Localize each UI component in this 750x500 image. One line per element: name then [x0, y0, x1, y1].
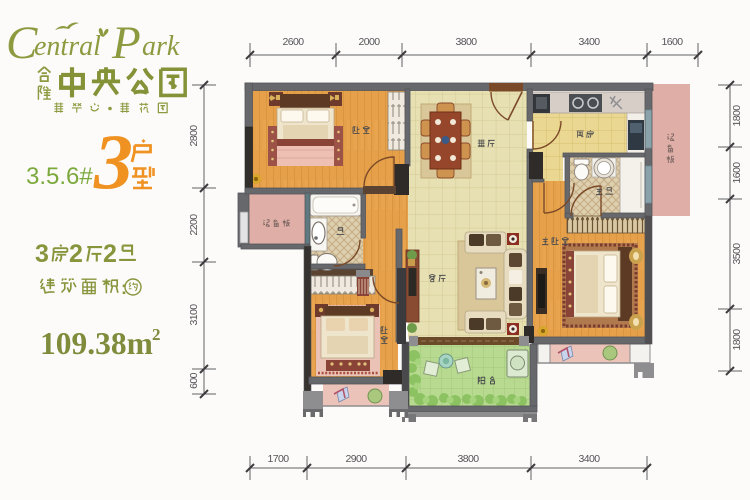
svg-text::: : [121, 278, 127, 298]
svg-text:3: 3 [93, 118, 133, 205]
svg-text:3: 3 [35, 240, 49, 268]
svg-text:109.38m: 109.38m [40, 326, 153, 361]
svg-text:2900: 2900 [346, 453, 368, 465]
svg-text:2: 2 [103, 240, 117, 268]
svg-text:1700: 1700 [268, 453, 290, 465]
svg-text:3100: 3100 [188, 304, 200, 326]
svg-text:3.5.6#: 3.5.6# [26, 163, 93, 190]
svg-text:3800: 3800 [458, 453, 480, 465]
svg-text:1800: 1800 [731, 329, 743, 351]
svg-text:2: 2 [152, 325, 161, 344]
svg-text:ark: ark [142, 31, 180, 62]
svg-text:3800: 3800 [456, 36, 478, 48]
svg-text:2600: 2600 [283, 36, 305, 48]
svg-text:600: 600 [188, 372, 200, 388]
svg-text:1600: 1600 [731, 162, 743, 184]
svg-text:3400: 3400 [579, 453, 601, 465]
svg-text:3500: 3500 [731, 243, 743, 265]
svg-text:1600: 1600 [662, 36, 684, 48]
svg-text:P: P [111, 17, 141, 69]
svg-text:2800: 2800 [188, 125, 200, 147]
svg-text:2000: 2000 [359, 36, 381, 48]
svg-text:entral: entral [34, 31, 101, 62]
svg-text:3400: 3400 [579, 36, 601, 48]
svg-text:1800: 1800 [731, 105, 743, 127]
svg-text:2200: 2200 [188, 214, 200, 236]
svg-text:2: 2 [69, 240, 83, 268]
